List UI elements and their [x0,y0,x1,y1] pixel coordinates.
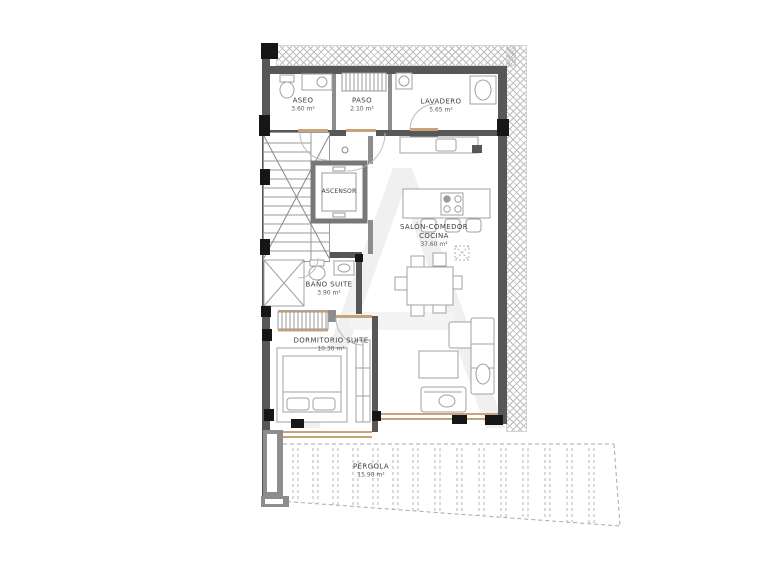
floor-plan-canvas: ASEO 3.60 m² PASO 2.10 m² LAVADERO 5.65 … [0,0,768,576]
room-label-lavadero: LAVADERO 5.65 m² [421,98,462,115]
coffee-table [419,351,458,378]
sink-lavadero [470,76,496,104]
shower [264,260,304,306]
loveseat [421,387,466,412]
room-name: ASCENSOR [322,188,357,196]
room-area: 15.90 m² [353,472,389,480]
room-area: 5.65 m² [421,107,462,115]
sink-aseo [302,74,332,90]
room-area: 2.10 m² [350,106,374,114]
room-name: ASEO [291,97,315,106]
room-label-ascensor: ASCENSOR [322,188,357,196]
paso-shelf [342,73,386,91]
room-label-dormitorio-suite: DORMITORIO SUITE 10.30 m² [293,337,368,354]
closet-strip [278,312,328,329]
room-label-paso: PASO 2.10 m² [350,97,374,114]
room-name: PÉRGOLA [353,463,389,472]
room-name: PASO [350,97,374,106]
room-area: 10.30 m² [293,346,368,354]
room-label-salon: SALÓN-COMEDOR COCINA 37.60 m² [400,223,468,249]
room-area: 3.90 m² [306,290,353,298]
bed [277,348,347,422]
room-name: SALÓN-COMEDOR [400,223,468,232]
washer-icon [396,73,412,89]
toilet-aseo [280,75,294,98]
room-name-2: COCINA [400,232,468,241]
left-wall-foot [261,430,289,507]
room-area: 3.60 m² [291,106,315,114]
kitchen-counter [400,137,482,153]
room-label-aseo: ASEO 3.60 m² [291,97,315,114]
room-name: BAÑO SUITE [306,281,353,290]
room-label-pergola: PÉRGOLA 15.90 m² [353,463,389,480]
room-label-bano-suite: BAÑO SUITE 3.90 m² [306,281,353,298]
room-area: 37.60 m² [400,241,468,249]
sink-suite [334,261,354,275]
plan-drawing [0,0,768,576]
room-name: DORMITORIO SUITE [293,337,368,346]
room-name: LAVADERO [421,98,462,107]
